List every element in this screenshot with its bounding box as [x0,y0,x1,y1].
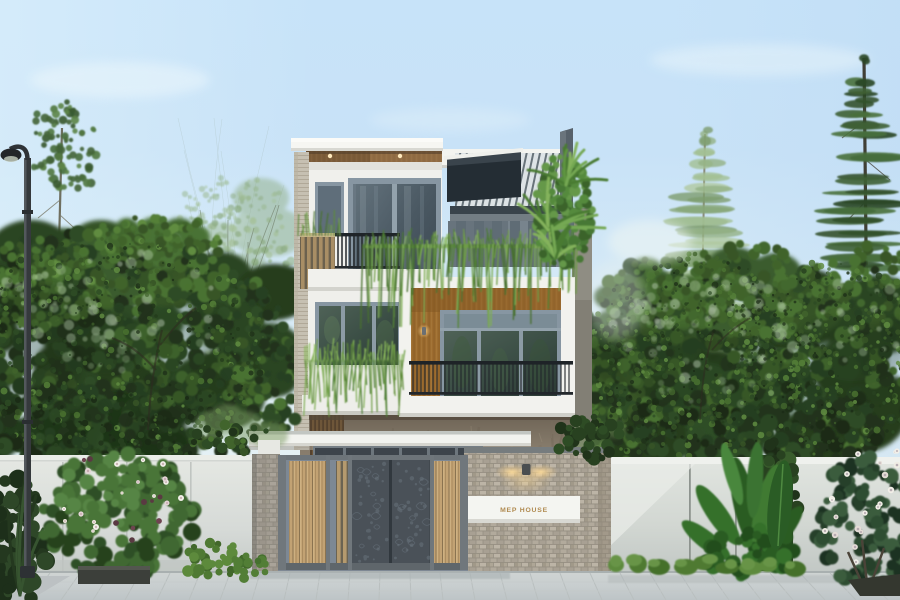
svg-text:MEP HOUSE: MEP HOUSE [500,507,548,514]
